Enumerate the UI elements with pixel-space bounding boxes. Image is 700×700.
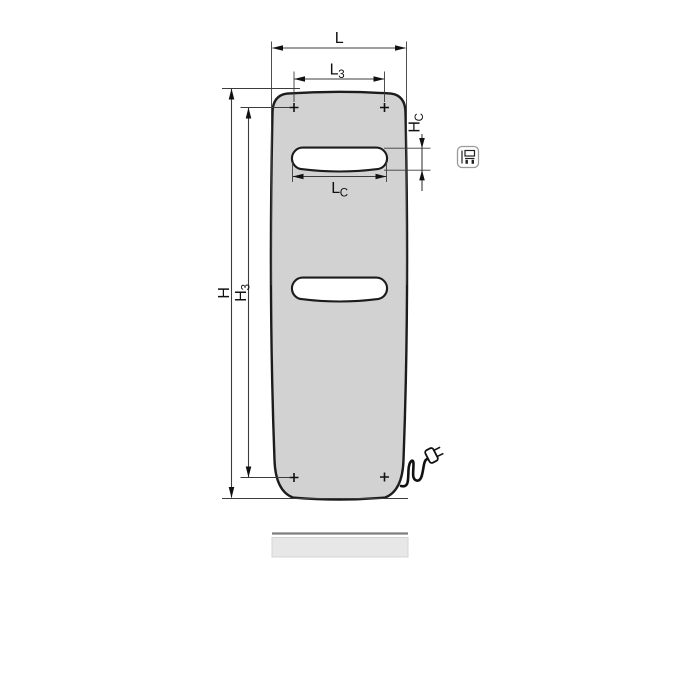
towel-bar-variant-icon	[458, 147, 479, 168]
label-H3: H3	[233, 284, 253, 301]
towel-slot-upper	[292, 148, 387, 172]
arrowhead-left	[272, 45, 283, 51]
label-L: L	[335, 30, 344, 47]
label-L3: L3	[330, 62, 345, 82]
arrowhead-top	[246, 108, 252, 119]
arrowhead-down	[419, 138, 425, 148]
drawing-page: L L3 LC H H3	[0, 0, 700, 700]
floor-strip	[272, 534, 408, 558]
radiator-panel	[271, 92, 407, 500]
arrowhead-up	[419, 170, 425, 180]
technical-drawing: L L3 LC H H3	[0, 0, 700, 700]
badge-foot-right	[472, 160, 474, 164]
label-HC: HC	[407, 113, 427, 132]
arrowhead-right	[395, 45, 406, 51]
badge-frame	[458, 147, 479, 168]
power-cable	[401, 459, 429, 486]
arrowhead-bottom	[246, 467, 252, 478]
arrowhead-bottom	[229, 487, 235, 498]
label-H: H	[216, 287, 233, 298]
floor-surface	[272, 538, 408, 558]
arrowhead-top	[229, 89, 235, 100]
arrowhead-right	[374, 76, 385, 82]
towel-slot-lower	[292, 278, 387, 302]
badge-foot-left	[466, 160, 468, 164]
power-plug-icon	[424, 444, 445, 464]
power-connection	[401, 444, 445, 486]
arrowhead-left	[294, 76, 305, 82]
